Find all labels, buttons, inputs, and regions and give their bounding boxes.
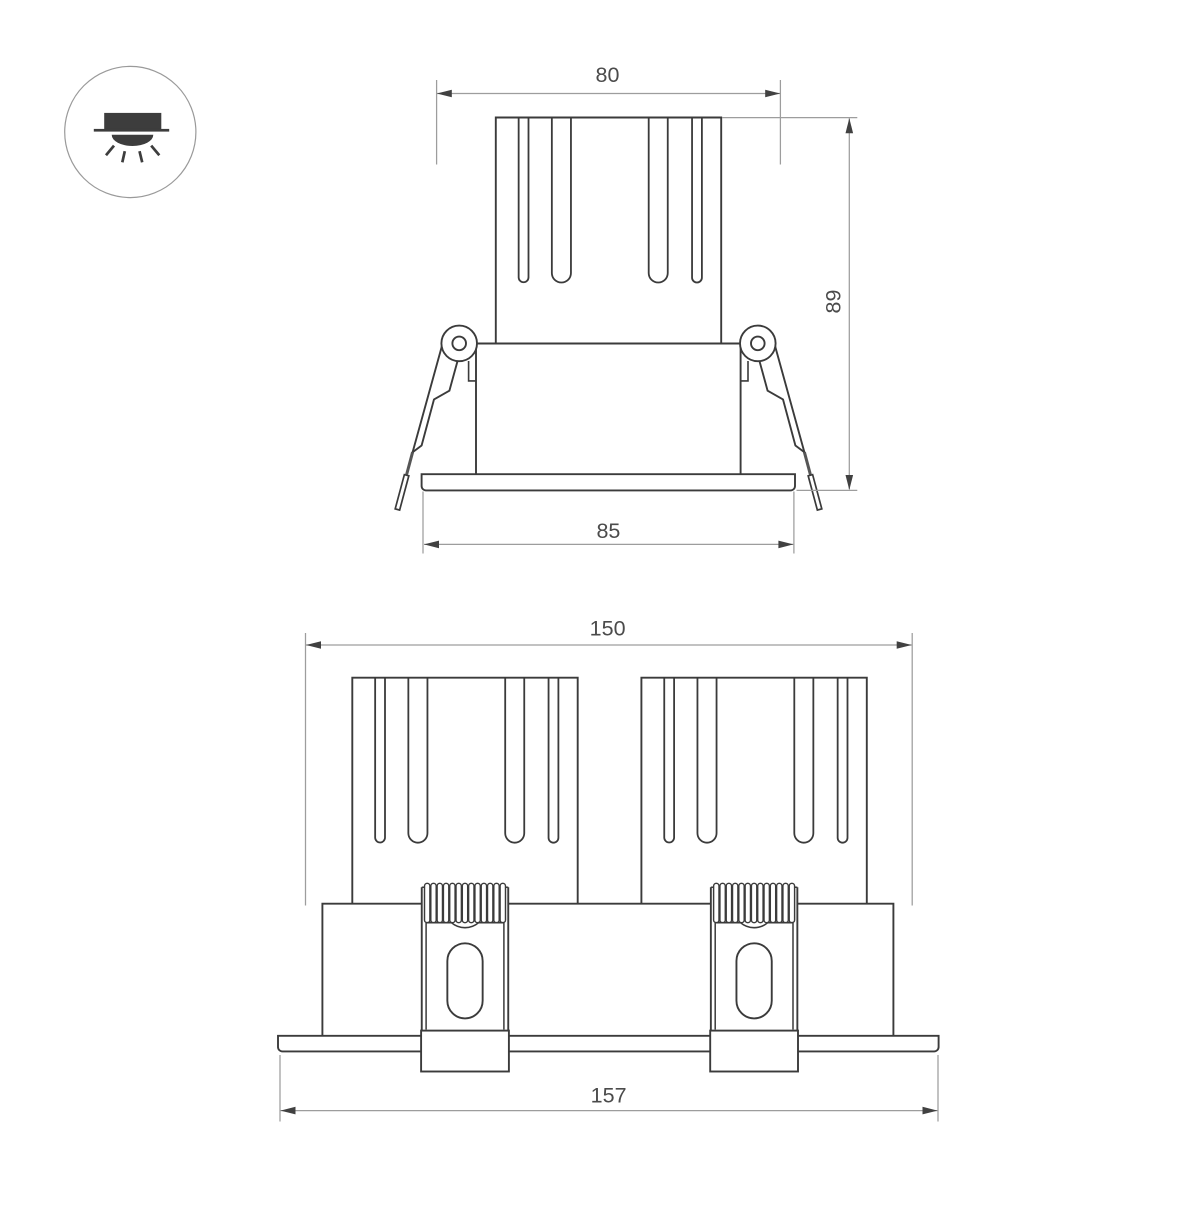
svg-text:157: 157 xyxy=(591,1083,627,1107)
svg-text:85: 85 xyxy=(596,519,620,543)
svg-text:150: 150 xyxy=(590,616,626,640)
svg-text:80: 80 xyxy=(596,63,620,87)
svg-text:89: 89 xyxy=(822,290,846,314)
